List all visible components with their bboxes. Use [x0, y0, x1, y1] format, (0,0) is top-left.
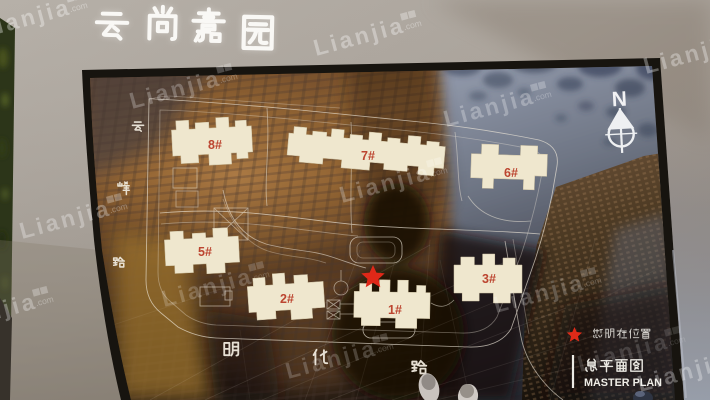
svg-text:3#: 3# [482, 272, 496, 286]
svg-text:2#: 2# [280, 292, 294, 306]
svg-text:N: N [611, 88, 627, 112]
svg-text:8#: 8# [208, 138, 222, 152]
svg-text:7#: 7# [361, 149, 375, 163]
svg-text:6#: 6# [504, 166, 518, 180]
svg-text:1#: 1# [388, 303, 402, 317]
svg-text:5#: 5# [198, 245, 212, 259]
